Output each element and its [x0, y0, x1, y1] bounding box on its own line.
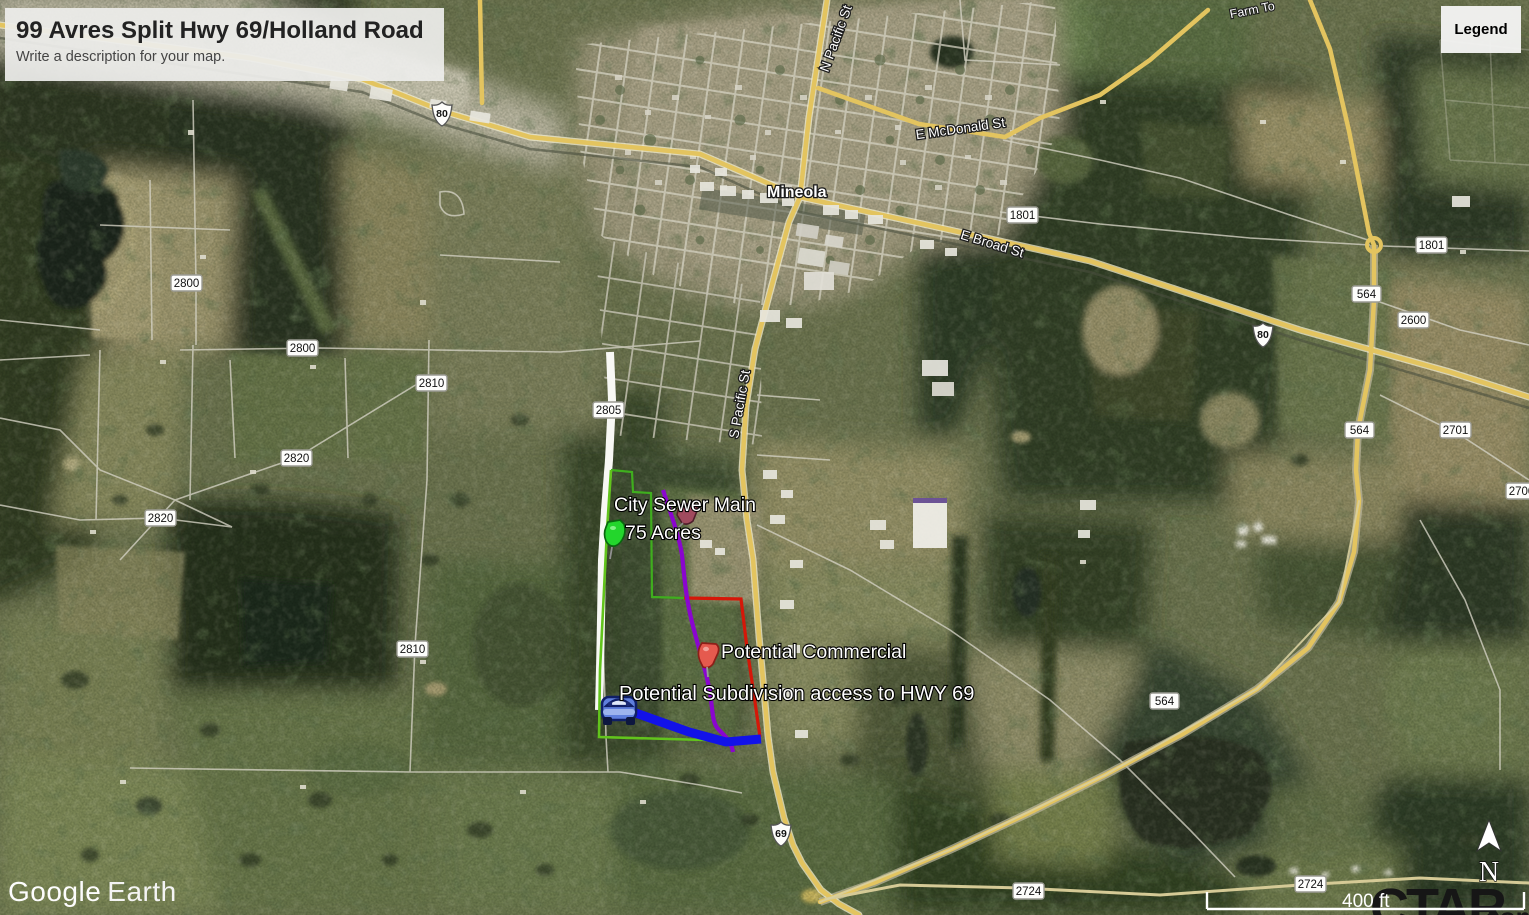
svg-text:69: 69 [775, 828, 787, 840]
svg-text:1801: 1801 [1419, 240, 1445, 252]
svg-text:Mineola: Mineola [767, 184, 827, 201]
svg-text:2701: 2701 [1443, 425, 1469, 437]
svg-text:564: 564 [1350, 425, 1370, 437]
svg-text:2724: 2724 [1298, 879, 1324, 891]
svg-text:564: 564 [1357, 289, 1377, 301]
svg-text:Potential Commercial: Potential Commercial [721, 641, 906, 663]
svg-text:2800: 2800 [174, 278, 200, 290]
svg-text:2600: 2600 [1401, 315, 1427, 327]
svg-text:Potential Subdivision access t: Potential Subdivision access to HWY 69 [619, 683, 974, 705]
svg-text:75 Acres: 75 Acres [625, 522, 701, 544]
svg-text:564: 564 [1155, 696, 1175, 708]
svg-text:400 ft: 400 ft [1342, 891, 1390, 912]
svg-text:80: 80 [436, 108, 448, 120]
svg-text:City Sewer Main: City Sewer Main [614, 494, 756, 516]
svg-text:80: 80 [1257, 329, 1269, 341]
svg-text:2810: 2810 [400, 644, 426, 656]
svg-text:2820: 2820 [284, 453, 310, 465]
svg-text:1801: 1801 [1010, 210, 1036, 222]
svg-text:2820: 2820 [148, 513, 174, 525]
svg-text:2810: 2810 [419, 378, 445, 390]
svg-text:GoogleEarth: GoogleEarth [8, 876, 177, 907]
svg-text:N: N [1479, 857, 1499, 888]
svg-text:2805: 2805 [596, 405, 622, 417]
svg-text:2800: 2800 [290, 343, 316, 355]
svg-text:2724: 2724 [1016, 886, 1042, 898]
svg-text:2700: 2700 [1509, 486, 1529, 498]
